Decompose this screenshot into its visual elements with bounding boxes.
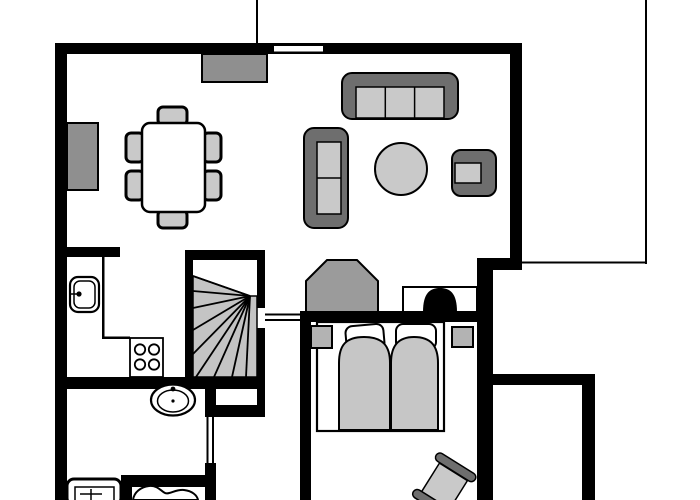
tv-cabinet-icon xyxy=(403,287,477,312)
nightstand-right-icon xyxy=(452,327,473,347)
doorway-bathroom xyxy=(205,417,216,463)
wall-segment xyxy=(55,247,120,257)
window-living-top xyxy=(274,46,323,52)
wall-segment xyxy=(185,250,265,260)
wall-segment xyxy=(55,43,67,500)
armchair-icon xyxy=(452,150,496,196)
wall-segment xyxy=(257,250,265,308)
boundary-line xyxy=(645,0,647,264)
boundary-line xyxy=(522,262,645,264)
doorway-hall-gap xyxy=(265,308,300,328)
wall-segment xyxy=(121,475,132,500)
doorway-hall xyxy=(265,308,300,328)
wall-segment xyxy=(582,374,595,500)
sofa-large-icon xyxy=(342,73,458,119)
boundary-line xyxy=(256,0,258,44)
wall-segment xyxy=(493,374,595,385)
floor-plan xyxy=(0,0,700,500)
doorway-hall-jamb-line xyxy=(265,319,300,321)
washing-machine-icon xyxy=(67,479,121,500)
coffee-table-icon xyxy=(375,143,427,195)
boundary-line xyxy=(102,337,130,340)
doorway-bathroom-jamb-line xyxy=(212,417,214,463)
stove-icon xyxy=(130,338,163,377)
doorway-hall-jamb-line xyxy=(265,314,300,316)
kitchen-sink-icon xyxy=(70,277,99,312)
bathroom-sink-icon xyxy=(151,385,195,416)
wall-segment xyxy=(477,258,493,500)
left-sideboard-icon xyxy=(67,123,98,190)
sofa-small-icon xyxy=(304,128,348,228)
nightstand-left-icon xyxy=(311,326,332,348)
wall-segment xyxy=(510,43,522,265)
doorway-bathroom-jamb-line xyxy=(207,417,209,463)
wall-segment xyxy=(121,475,216,487)
boundary-line xyxy=(102,257,105,338)
top-sideboard-icon xyxy=(202,54,267,82)
wall-segment xyxy=(300,311,311,500)
wall-segment xyxy=(185,250,193,389)
wall-segment xyxy=(205,389,216,417)
window-living-top-gap xyxy=(274,46,323,52)
floor-plan-canvas xyxy=(0,0,700,500)
double-bed-icon xyxy=(317,322,444,431)
